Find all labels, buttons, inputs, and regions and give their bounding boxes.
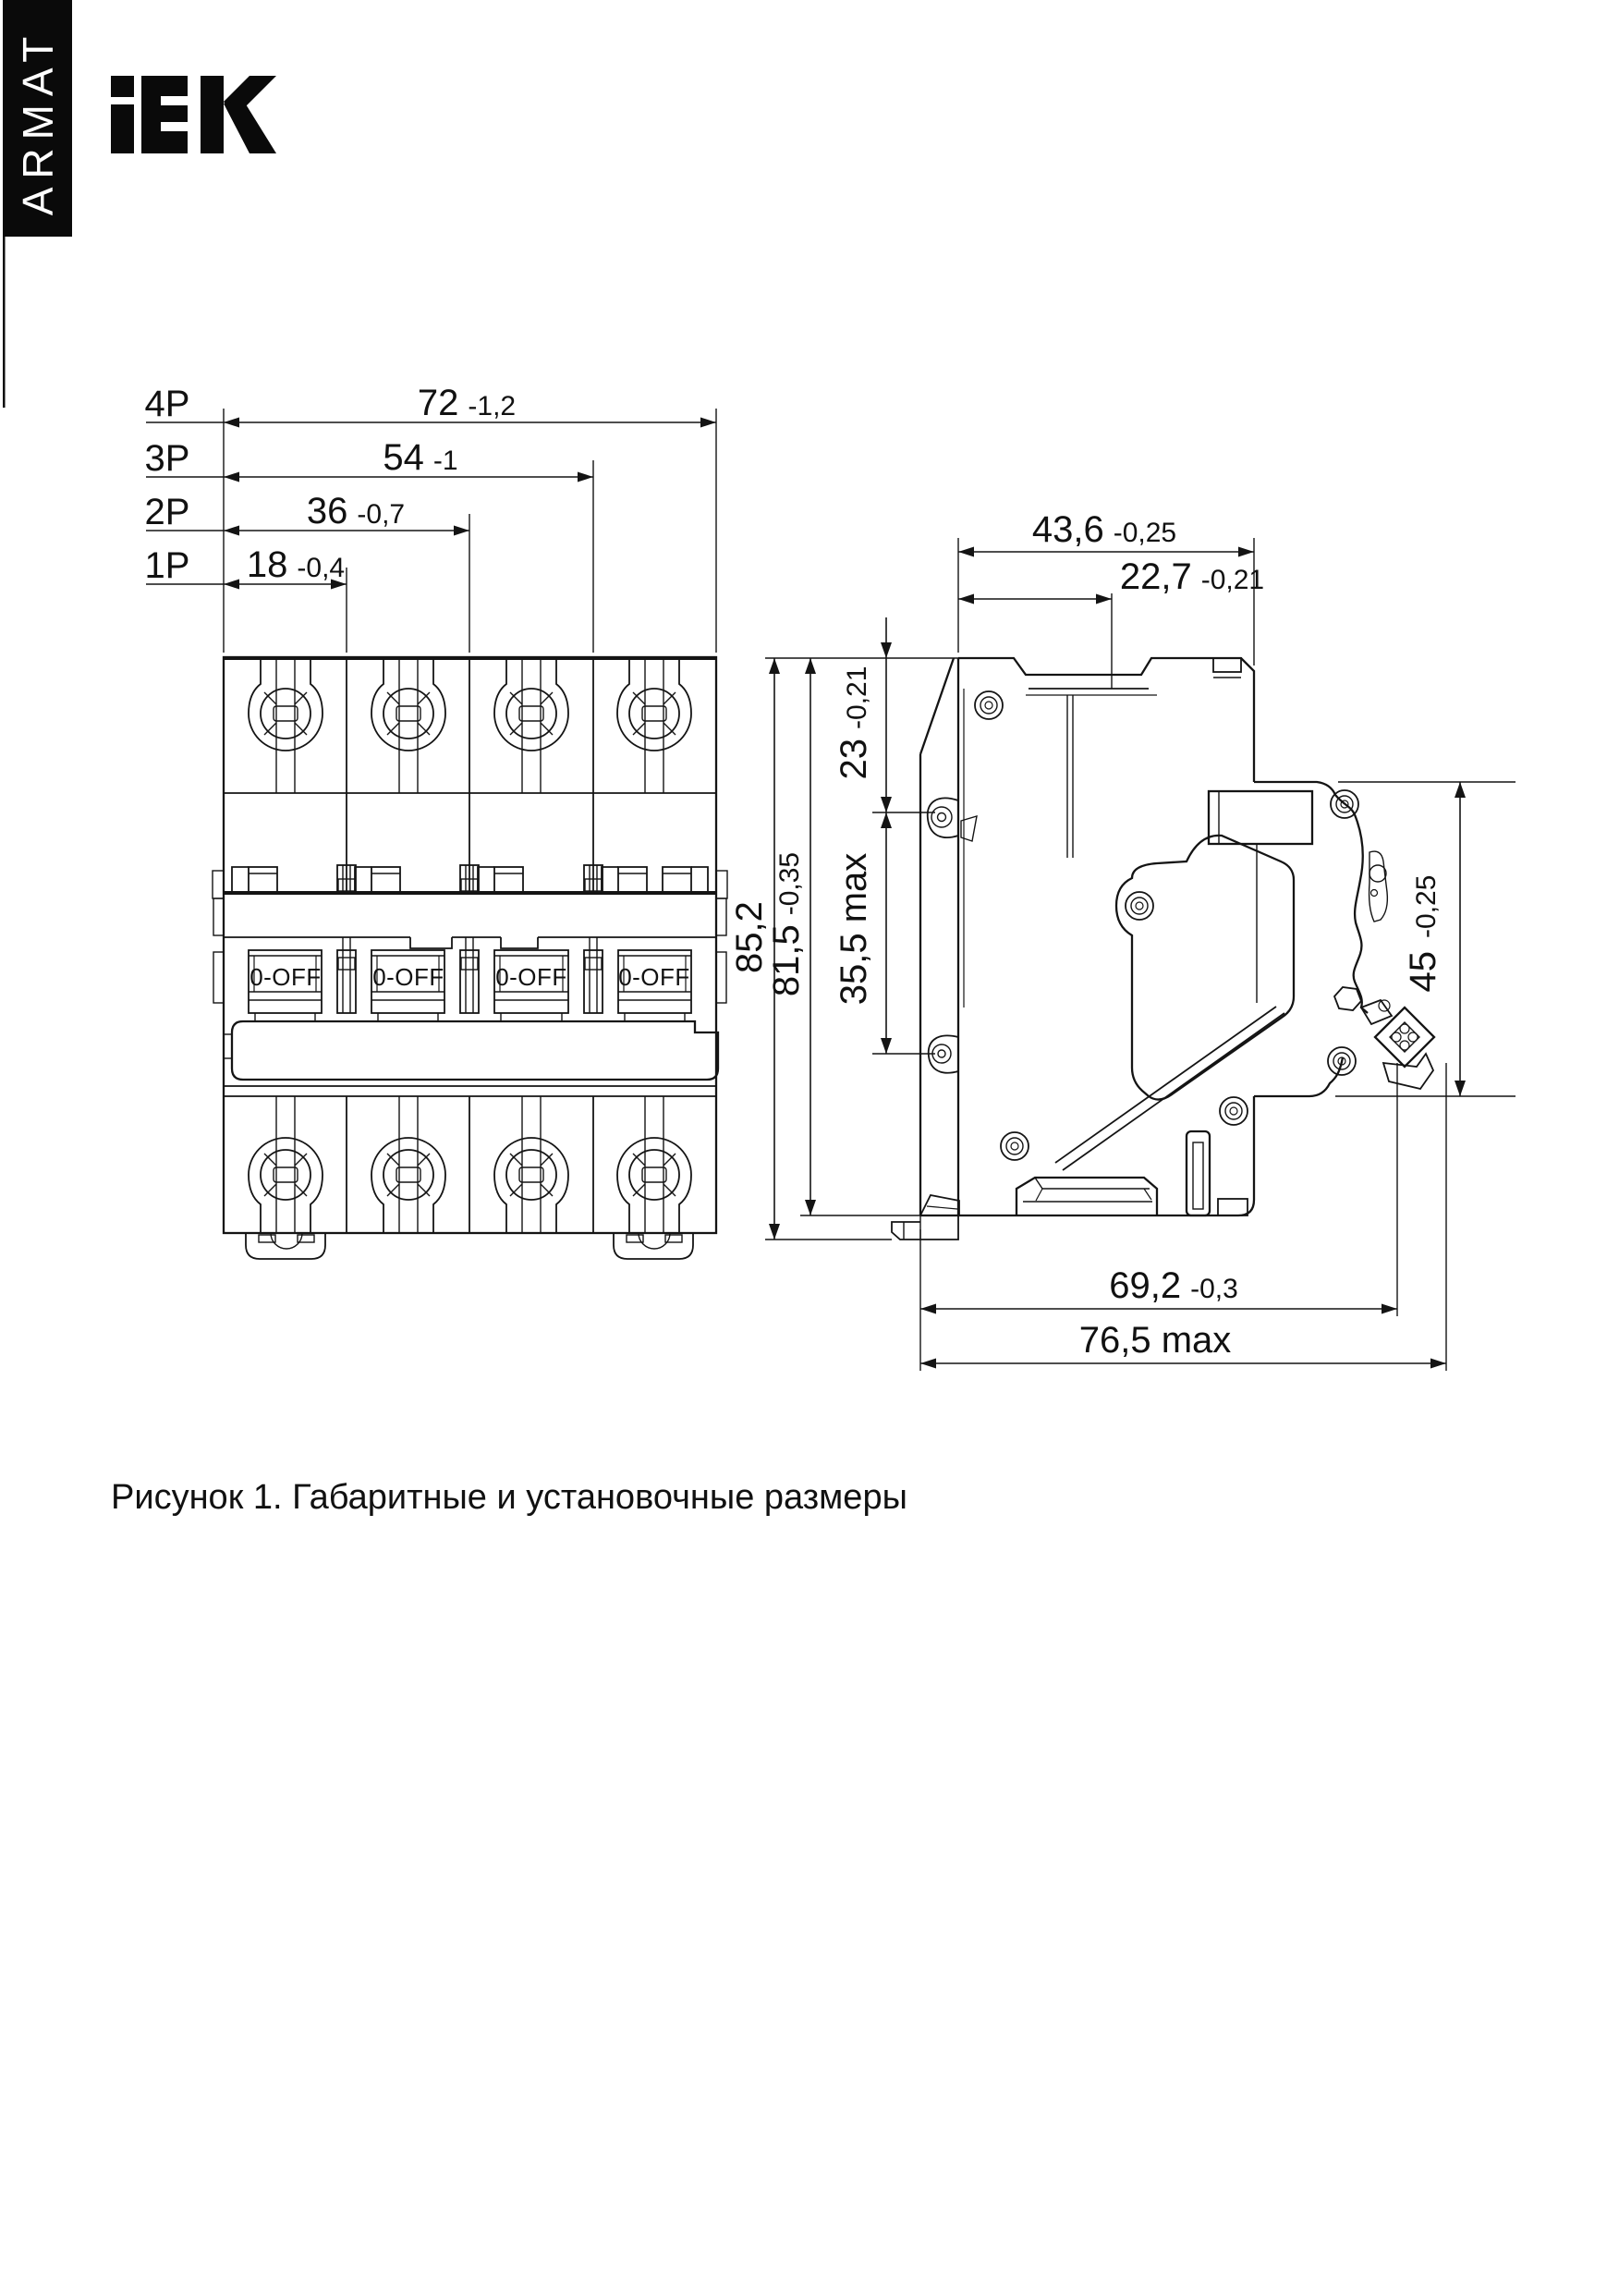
dim-text: 43,6-0,25 <box>1032 509 1176 550</box>
base-tab <box>1218 1199 1248 1215</box>
iek-logo <box>111 76 276 153</box>
top-terminal-block <box>1213 658 1241 672</box>
handle-label: 0-OFF <box>250 963 322 991</box>
dim-76-5: 76,5 max <box>920 1320 1446 1369</box>
side-front-face <box>920 658 958 1215</box>
dim-text: 76,5 max <box>1079 1320 1232 1361</box>
din-clip <box>614 1233 693 1259</box>
side-top-outline <box>958 658 1254 782</box>
figure-caption: Рисунок 1. Габаритные и установочные раз… <box>111 1478 907 1517</box>
pawl-hex-hole <box>1334 987 1361 1010</box>
front-lower-lines <box>224 1086 716 1096</box>
handle-label: 0-OFF <box>618 963 690 991</box>
dim-text: 18-0,4 <box>247 544 345 585</box>
dim-22-7: 22,7-0,21 <box>958 556 1264 689</box>
dim-text: 69,2-0,3 <box>1109 1265 1238 1306</box>
handle-tie-bar <box>232 1021 718 1080</box>
header: ARMAT <box>3 0 276 408</box>
internal-seam <box>1067 695 1073 858</box>
screw-terminal-icon <box>249 657 323 793</box>
screw-terminal-icon <box>371 657 445 793</box>
handle-label: 0-OFF <box>372 963 444 991</box>
pole-label: 4P <box>145 384 190 424</box>
dim-text: 54-1 <box>383 437 457 478</box>
dim-3p-54: 3P 54-1 <box>145 437 593 482</box>
latch-lever <box>1369 851 1390 1011</box>
screw-terminal-icon <box>617 1096 691 1233</box>
technical-drawing: ARMAT <box>0 0 1619 2296</box>
din-clip <box>246 1233 325 1259</box>
dim-text: 45-0,25 <box>1403 875 1443 993</box>
dim-text: 72-1,2 <box>418 383 516 423</box>
dim-text: 35,5 max <box>834 853 874 1006</box>
pole-label: 1P <box>145 545 190 586</box>
pole-label: 2P <box>145 492 190 532</box>
internal-cutout <box>1116 836 1294 1100</box>
front-clip-hook <box>920 1195 959 1215</box>
screw-terminal-icon <box>494 1096 568 1233</box>
front-view: 0-OFF 0-OFF 0-OFF 0-OFF <box>213 657 727 1259</box>
tie-bar-tab <box>224 1034 232 1058</box>
dim-text: 85,2 <box>729 901 770 973</box>
dim-45: 45-0,25 <box>1335 782 1516 1096</box>
rivets <box>975 691 1358 1160</box>
handle-row: 0-OFF 0-OFF 0-OFF 0-OFF <box>213 937 726 1021</box>
brand-vertical-label: ARMAT <box>14 29 62 216</box>
internal-diagonal <box>1055 1007 1284 1170</box>
side-bottom-right <box>1238 1057 1343 1215</box>
dim-text: 36-0,7 <box>307 491 405 531</box>
side-dimensions: 43,6-0,25 22,7-0,21 23-0,21 35,5 max <box>729 509 1516 1371</box>
din-clip-spring <box>1016 1178 1157 1215</box>
base-slot <box>1187 1131 1210 1215</box>
screw-terminal-icon <box>249 1096 323 1233</box>
dim-1p-18: 1P 18-0,4 <box>145 544 347 590</box>
page-left-rule <box>3 237 6 408</box>
front-dimensions: 4P 72-1,2 3P 54-1 2P 36-0,7 1P 18-0,4 <box>145 383 716 653</box>
screw-terminal-icon <box>371 1096 445 1233</box>
dim-text: 81,5-0,35 <box>766 852 807 996</box>
screw-terminal-icon <box>494 657 568 793</box>
dim-2p-36: 2P 36-0,7 <box>145 491 469 536</box>
pole-label: 3P <box>145 438 190 479</box>
screw-terminal-icon <box>617 657 691 793</box>
panel-mount-ear <box>928 798 977 841</box>
dim-4p-72: 4P 72-1,2 <box>145 383 716 428</box>
dim-text: 23-0,21 <box>834 666 874 780</box>
front-rail <box>213 893 726 948</box>
side-view <box>892 658 1434 1240</box>
catalog-page: ARMAT <box>0 0 1619 2296</box>
dim-text: 22,7-0,21 <box>1120 556 1264 597</box>
handle-label: 0-OFF <box>495 963 567 991</box>
din-foot <box>892 1215 958 1240</box>
